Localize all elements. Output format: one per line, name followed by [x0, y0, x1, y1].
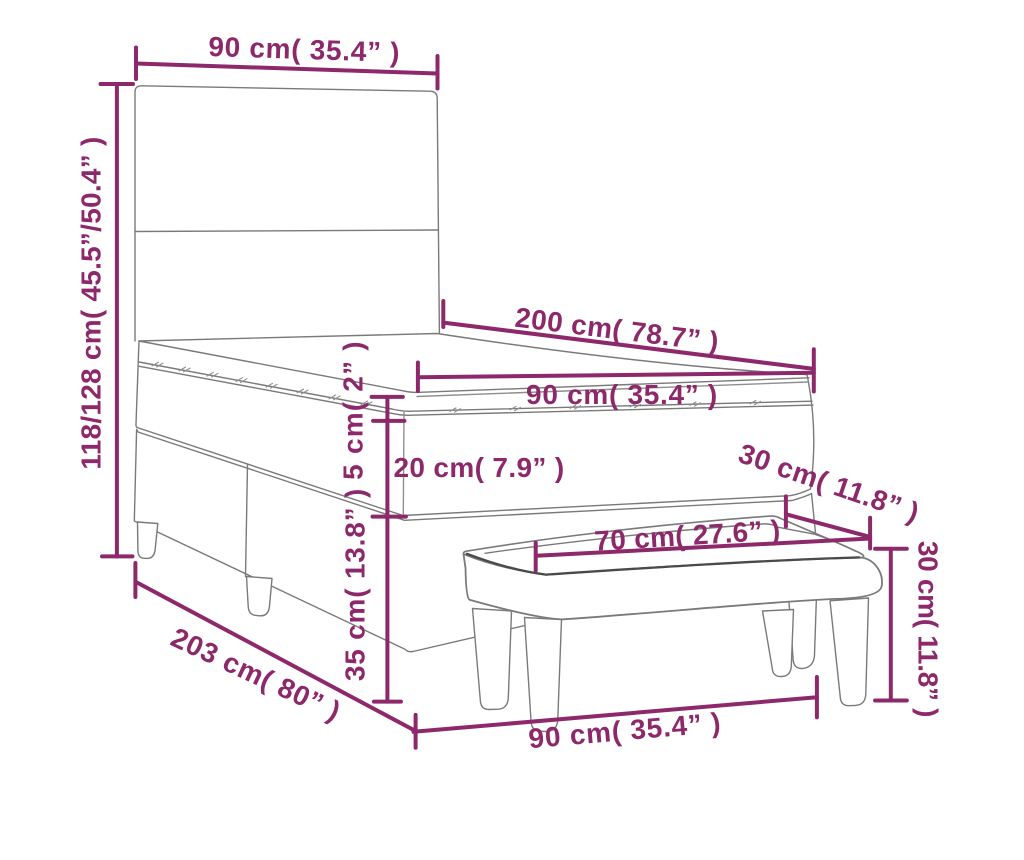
svg-text:5 cm( 2” ): 5 cm( 2” ) — [338, 340, 369, 480]
svg-text:30 cm( 11.8” ): 30 cm( 11.8” ) — [913, 541, 944, 717]
svg-text:90 cm( 35.4” ): 90 cm( 35.4” ) — [208, 31, 401, 68]
svg-text:118/128 cm( 45.5”/50.4” ): 118/128 cm( 45.5”/50.4” ) — [76, 136, 107, 469]
svg-text:90 cm( 35.4” ): 90 cm( 35.4” ) — [526, 379, 718, 410]
svg-text:35 cm( 13.8” ): 35 cm( 13.8” ) — [340, 488, 371, 681]
svg-text:20 cm( 7.9” ): 20 cm( 7.9” ) — [393, 452, 564, 483]
